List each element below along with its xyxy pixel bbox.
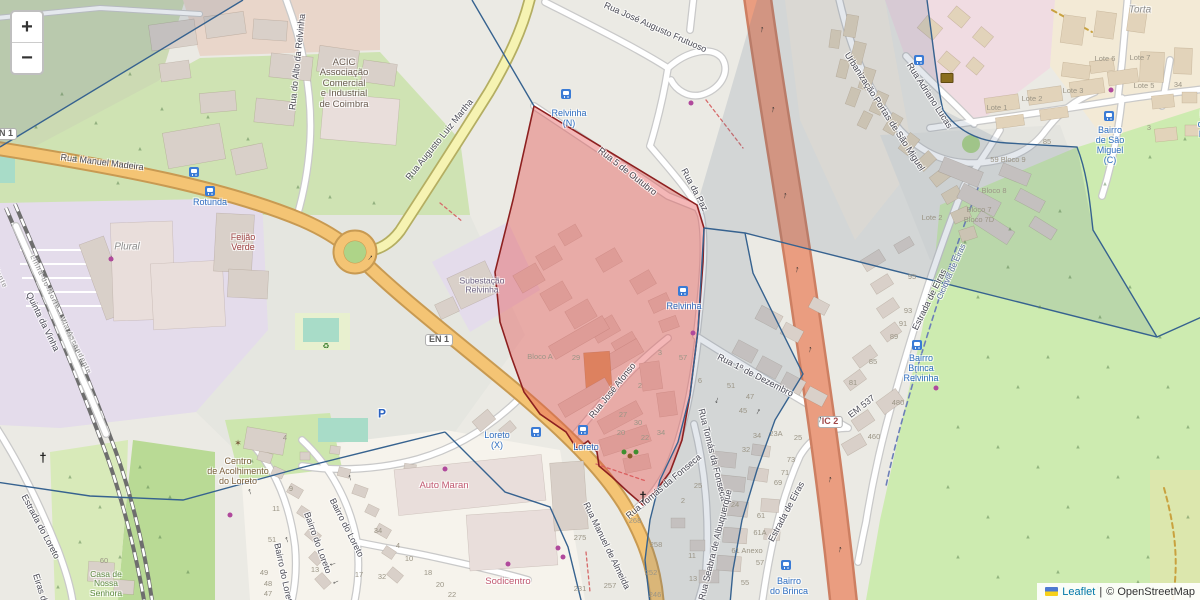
building [269,53,313,81]
ukraine-flag-icon [1045,587,1058,596]
building [1182,92,1197,103]
building [316,45,359,76]
building [1139,52,1164,83]
map-canvas[interactable]: Rua Manuel MadeiraRua do Alto da Relvinh… [0,0,1200,600]
building [1185,125,1199,136]
building [87,561,114,583]
building [466,509,558,571]
building [1174,48,1193,75]
building [300,452,310,460]
building [361,60,398,87]
building [252,19,287,41]
osm-attribution-text: © OpenStreetMap [1106,586,1195,598]
building [1126,7,1147,33]
zoom-out-button[interactable]: − [12,43,42,73]
building [764,528,781,540]
building [214,213,255,273]
attribution-separator: | [1099,586,1102,598]
building [199,90,237,113]
zoom-in-button[interactable]: + [12,12,42,43]
building [114,579,135,594]
map-svg [0,0,1200,600]
leaflet-link[interactable]: Leaflet [1062,586,1095,598]
building [1060,15,1086,46]
building [320,93,400,145]
zoom-control: + − [10,10,44,75]
building [227,269,268,299]
building [761,498,780,512]
building [1154,127,1177,142]
building [1093,11,1116,40]
building [330,445,341,454]
building [159,60,191,82]
attribution-bar: Leaflet | © OpenStreetMap [1037,583,1200,600]
building [1151,94,1174,109]
building [254,98,296,126]
